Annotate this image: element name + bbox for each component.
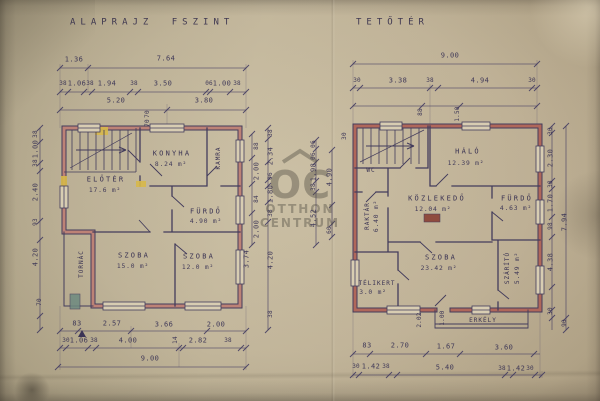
room-area-halo: 12.39 m² <box>448 161 485 167</box>
room-name-eloter: ELŐTÉR <box>87 177 126 184</box>
dim-label: 30 <box>352 364 360 370</box>
dim-label: 60 <box>327 226 333 234</box>
dim-label: 14 <box>173 336 179 344</box>
dim-label: 38 <box>33 159 39 167</box>
porch-post <box>70 294 80 309</box>
dim-label: 1.06 <box>68 81 86 88</box>
dim-label: 3.60 <box>495 345 513 352</box>
dim-label: 30 <box>548 307 554 315</box>
room-name-furdo: FÜRDŐ <box>190 209 222 216</box>
dim-label: 38 <box>498 366 506 372</box>
dim-label: 7.94 <box>562 213 569 231</box>
dim-label: 2.40 <box>33 183 40 201</box>
dim-label: 4.38 <box>548 253 555 271</box>
dim-label: 38 <box>130 81 138 87</box>
dim-label: 5.20 <box>107 98 125 105</box>
dim-label: 1.00 <box>213 81 231 88</box>
dim-label: 1.36 <box>65 57 83 64</box>
dim-label: 4.94 <box>471 78 489 85</box>
room-name-erkely: ERKÉLY <box>469 318 497 324</box>
room-area-kozlekedo: 12.04 m² <box>415 207 452 213</box>
room-name-szoba1: SZOBA <box>118 253 150 260</box>
dim-label: 88 <box>418 108 424 116</box>
room-name-szoba: SZOBA <box>425 255 457 262</box>
dim-label: 4.20 <box>268 251 275 269</box>
scanned-floor-plan: OC OTTHON CENTRUM ALAPRAJZ FSZINT TETŐTÉ… <box>0 0 600 401</box>
dim-label: 38 <box>311 183 317 191</box>
stair-direction-arrow <box>76 147 126 153</box>
dim-label: 2.57 <box>103 321 121 328</box>
dim-label: 38 <box>548 180 554 188</box>
dim-label: 70 <box>37 298 43 306</box>
dim-label: 06 <box>205 81 213 87</box>
dim-label: 84 <box>254 195 260 203</box>
plan-right-title: TETŐTÉR <box>356 19 429 28</box>
dim-label: 1.00 <box>33 140 40 158</box>
dim-label: 30 <box>342 132 348 140</box>
dim-label: 06 <box>268 172 274 180</box>
room-area-raktar: 6.40 m² <box>374 200 380 232</box>
dim-label: 4.00 <box>119 338 137 345</box>
room-area-telikert: 3.0 m² <box>359 290 387 296</box>
dim-label: 30 <box>528 78 536 84</box>
room-name-wc: WC <box>366 168 375 174</box>
dim-label: 70 <box>145 119 151 127</box>
room-name-kozlekedo: KÖZLEKEDŐ <box>408 196 466 203</box>
dim-label: 1.42 <box>362 364 380 371</box>
dim-label: 4.90 <box>327 168 334 186</box>
room-name-telikert: TÉLIKERT <box>359 281 396 287</box>
dim-label: 1.50 <box>455 106 461 121</box>
dim-label: 30 <box>353 78 361 84</box>
dim-label: 2.00 <box>254 220 261 238</box>
room-area-konyha: 8.24 m² <box>155 162 187 168</box>
dim-label: 1.98 <box>311 163 318 181</box>
room-name-halo: HÁLÓ <box>455 149 481 156</box>
dim-label: 30 <box>62 338 70 344</box>
plan-right-stairs <box>360 128 424 164</box>
dim-label: 06 <box>311 152 317 160</box>
dim-label: 1.94 <box>98 81 116 88</box>
dim-label: 38 <box>382 364 390 370</box>
room-name-tornac: TORNÁC <box>79 250 85 278</box>
chimney-block <box>424 214 440 222</box>
dim-label: 70 <box>145 110 151 118</box>
room-name-konyha: KONYHA <box>153 151 192 158</box>
dim-label: 2.00 <box>254 162 261 180</box>
dim-label: 38 <box>90 338 98 344</box>
dim-label: 4.52 <box>311 209 318 227</box>
dim-label: 83 <box>72 321 81 328</box>
room-area-szarito: 5.49 m² <box>515 252 521 284</box>
room-name-szoba2: SZOBA <box>183 254 215 261</box>
dim-label: 98 <box>548 222 554 230</box>
dim-label: 38 <box>224 338 232 344</box>
dim-label: 38 <box>268 209 274 217</box>
room-area-szoba1: 15.0 m² <box>117 264 149 270</box>
dim-label: 38 <box>33 130 39 138</box>
dim-label: 06 <box>311 140 317 148</box>
dim-label: 38 <box>268 129 274 137</box>
dim-label: 2.82 <box>189 338 207 345</box>
dim-label: 2.34 <box>268 147 275 165</box>
dim-label: 2.30 <box>548 149 555 167</box>
dim-label: 2.00 <box>207 322 225 329</box>
dim-label: 3.74 <box>244 250 251 268</box>
room-area-furdo: 4.90 m² <box>190 219 222 225</box>
room-name-raktar: RAKTÁR <box>365 202 371 230</box>
dim-label: 1.06 <box>70 338 88 345</box>
dim-label: 1.80 <box>268 185 275 203</box>
dim-label: 3.38 <box>389 78 407 85</box>
dim-label: 38 <box>426 78 434 84</box>
dim-label: 3.80 <box>195 98 213 105</box>
dim-label: 1.70 <box>548 194 555 212</box>
dim-label: 3.50 <box>154 81 172 88</box>
dim-label: 93 <box>33 218 39 226</box>
dim-label: 38 <box>233 81 241 87</box>
dim-label: 30 <box>526 366 534 372</box>
dim-label: 30 <box>548 127 554 135</box>
dim-label: 2.02 <box>417 312 423 327</box>
room-name-kamra: KAMRA <box>216 146 222 169</box>
dim-label: 9.00 <box>441 53 459 60</box>
dim-label: 90 <box>562 319 568 327</box>
dim-label: 7.64 <box>157 56 175 63</box>
dim-label: 1.67 <box>437 344 455 351</box>
wall-highlight <box>136 181 146 187</box>
dim-label: 9.00 <box>141 356 159 363</box>
plan-left-title: ALAPRAJZ FSZINT <box>70 19 234 28</box>
plan-right-walls <box>355 126 540 328</box>
dim-label: 38 <box>86 81 94 87</box>
room-area-furdo2: 4.63 m² <box>500 206 532 212</box>
room-name-szarito: SZÁRÍTÓ <box>505 252 511 284</box>
dim-label: 88 <box>254 142 260 150</box>
room-area-szoba2: 12.0 m² <box>182 265 214 271</box>
dim-label: 5.40 <box>436 365 454 372</box>
stair-direction-arrow <box>366 143 414 149</box>
dim-label: 4.20 <box>33 248 40 266</box>
room-name-furdo2: FÜRDŐ <box>501 196 533 203</box>
dim-label: 1.00 <box>440 310 446 325</box>
room-area-eloter: 17.6 m² <box>89 188 121 194</box>
dim-label: 3.66 <box>155 322 173 329</box>
dim-label: 83 <box>362 343 371 350</box>
dim-label: 38 <box>268 310 274 318</box>
dim-label: 2.70 <box>391 343 409 350</box>
dim-label: 1.42 <box>507 366 525 373</box>
dim-label: 38 <box>59 81 67 87</box>
room-area-szoba: 23.42 m² <box>421 266 458 272</box>
